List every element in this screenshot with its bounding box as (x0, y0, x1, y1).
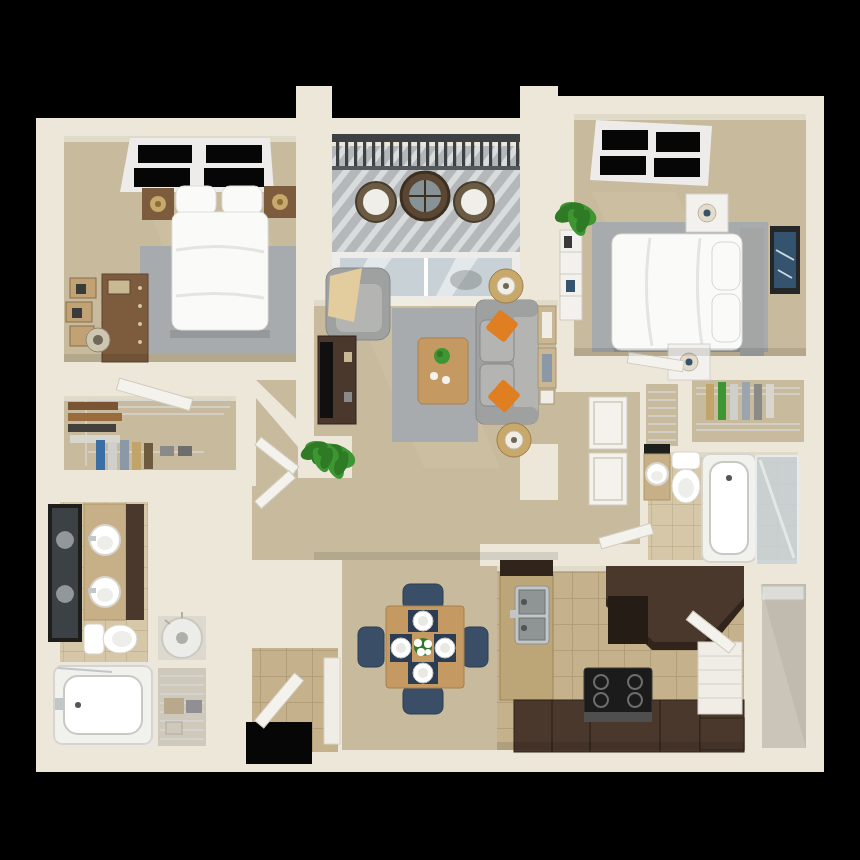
bedroom1-window (120, 138, 274, 192)
living-side-table-bottom (497, 423, 531, 457)
bedroom1-floor-lamp (86, 328, 110, 352)
floorplan-stage (0, 0, 860, 860)
master-bath-mirror (48, 504, 82, 642)
kitchen-range (584, 668, 652, 722)
front-door-opening (246, 722, 312, 764)
bedroom2-bed (612, 228, 764, 356)
living-armchair (326, 268, 390, 340)
balcony-railing (332, 134, 520, 142)
balcony-chair-right (454, 182, 494, 222)
master-bath-tub (54, 666, 152, 744)
bath2-tub-shower (702, 454, 798, 564)
entry-partition (324, 658, 340, 744)
bedroom1-nightstand-right (264, 186, 296, 218)
dining-centerpiece (414, 638, 432, 656)
bedroom2-bookshelf (560, 230, 582, 320)
utility-wire-shelves (160, 676, 204, 739)
bedroom1-nightstand-left (142, 188, 174, 220)
tv (320, 342, 333, 418)
linen-floor (646, 384, 678, 446)
floorplan-rendering (0, 0, 860, 860)
bedroom2-window (590, 120, 712, 186)
master-bath-toilet (84, 624, 137, 654)
balcony-chair-left (356, 182, 396, 222)
bath2-vanity (644, 444, 670, 500)
balcony-balusters (332, 142, 520, 168)
living-side-table-top (489, 269, 523, 303)
balcony-table (401, 172, 449, 220)
bedroom2-wall-art (770, 226, 800, 294)
kitchen-sink-peninsula (500, 560, 553, 700)
bedroom2-headboard (740, 228, 764, 356)
bath2-toilet (672, 452, 700, 503)
living-sofa (476, 300, 538, 424)
master-bath-vanity (84, 504, 144, 620)
refrigerator (608, 596, 648, 644)
bedroom1-dresser (102, 274, 148, 362)
living-coffee-table (418, 338, 468, 404)
bedroom2-nightstand-top (686, 194, 728, 232)
living-tv-console (318, 336, 356, 424)
